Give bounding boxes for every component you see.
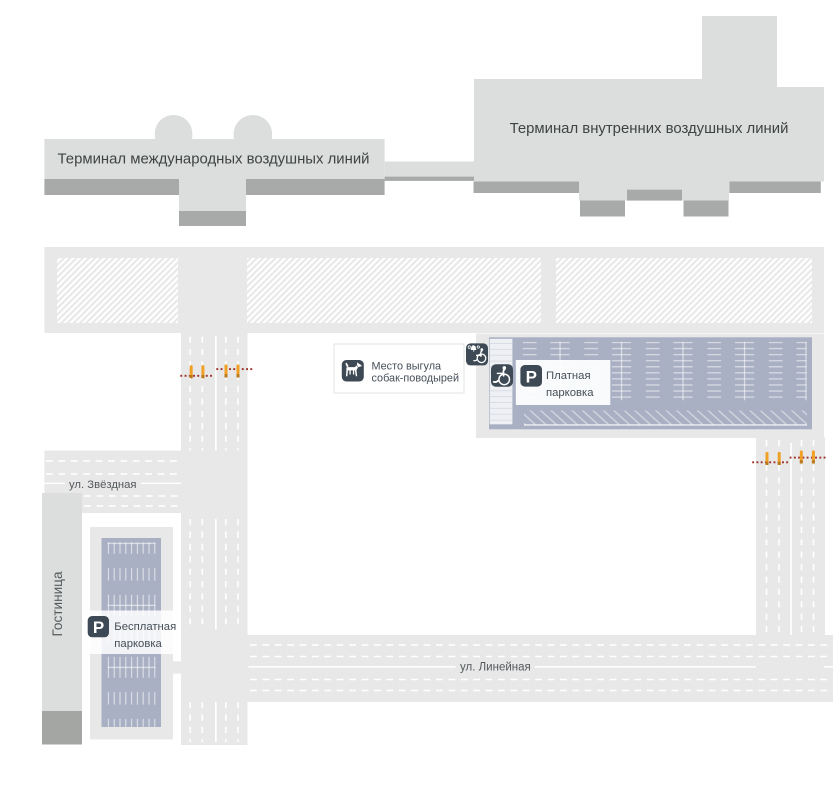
svg-text:Терминал внутренних воздушных: Терминал внутренних воздушных линий: [510, 121, 789, 137]
svg-text:Платная: Платная: [546, 370, 591, 382]
svg-text:P: P: [93, 618, 104, 637]
svg-text:собак-поводырей: собак-поводырей: [372, 372, 460, 384]
svg-text:Гостиница: Гостиница: [50, 571, 65, 637]
svg-text:ул. Звёздная: ул. Звёздная: [69, 479, 137, 491]
svg-text:Место выгула: Место выгула: [372, 360, 443, 372]
svg-text:P: P: [526, 367, 537, 386]
svg-text:парковка: парковка: [114, 638, 162, 650]
svg-text:Терминал международных воздушн: Терминал международных воздушных линий: [58, 152, 370, 168]
svg-text:Бесплатная: Бесплатная: [114, 621, 176, 633]
svg-text:ул. Линейная: ул. Линейная: [460, 662, 531, 674]
svg-text:парковка: парковка: [546, 387, 594, 399]
